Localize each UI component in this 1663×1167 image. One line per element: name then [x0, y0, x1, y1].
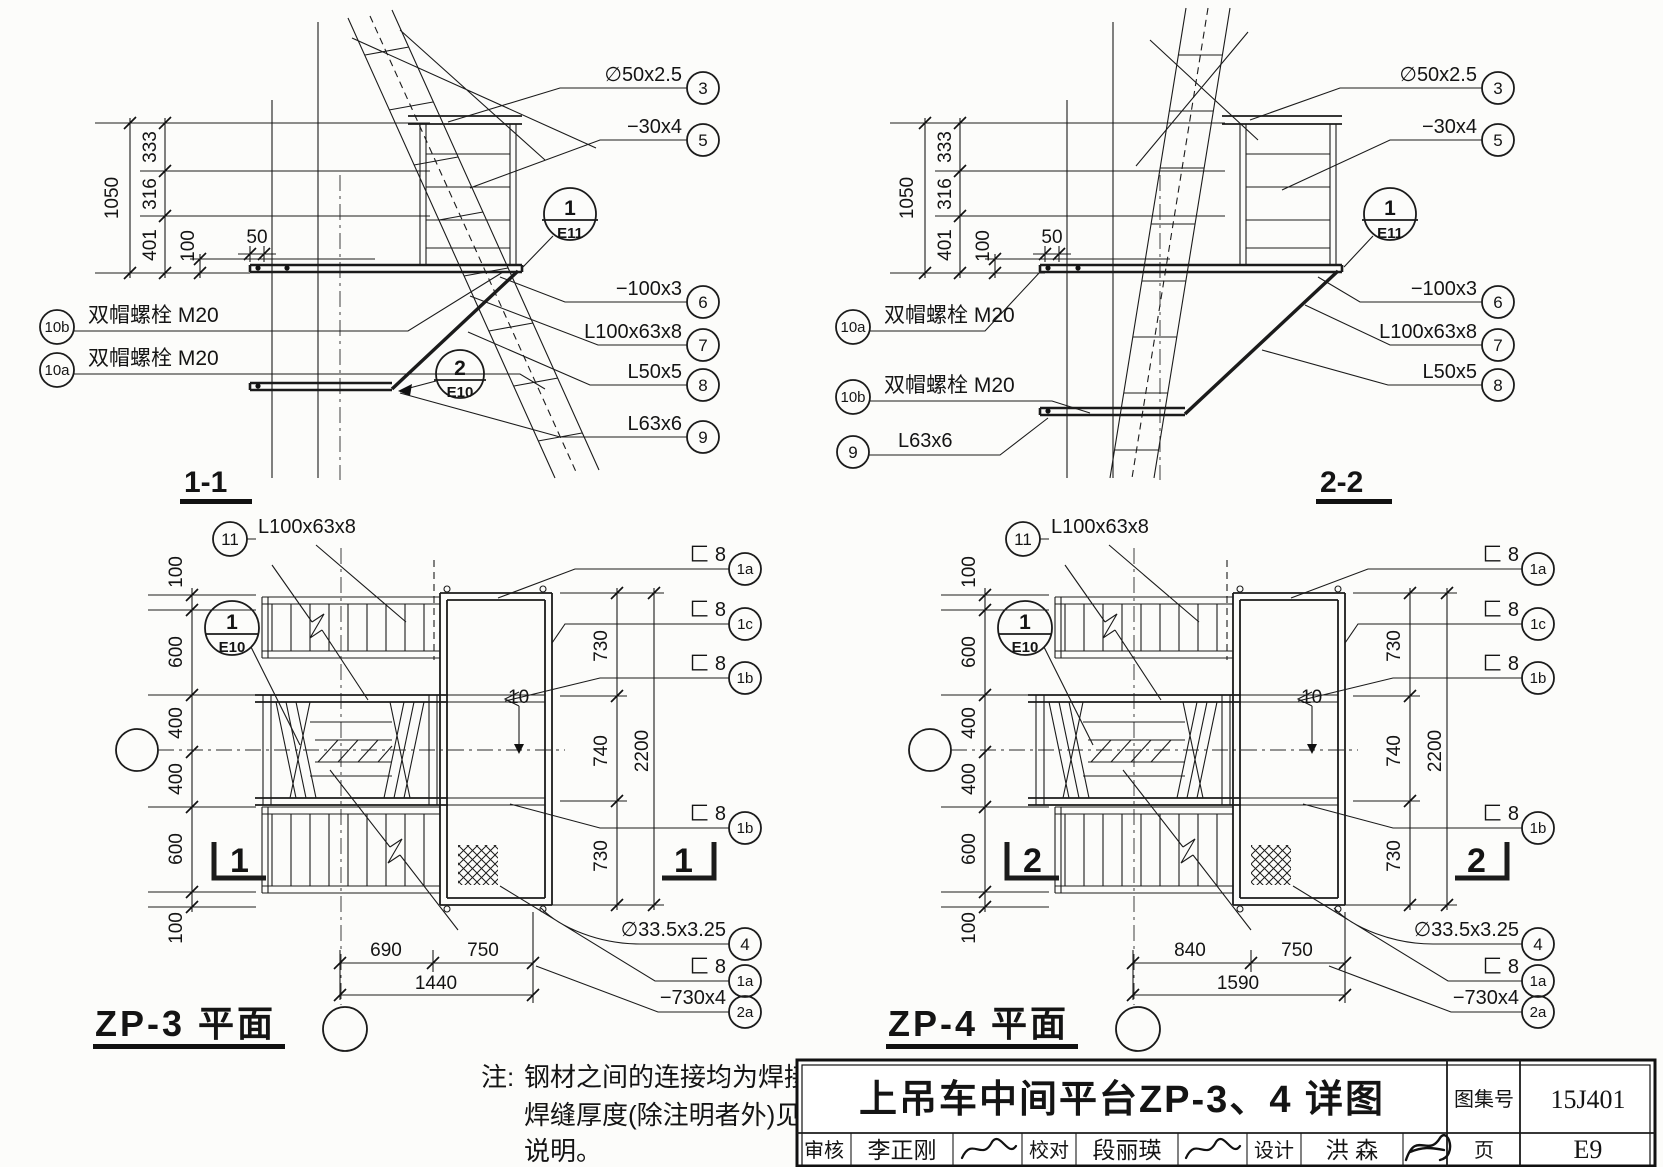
break-line	[1065, 565, 1161, 700]
title-underline	[886, 1044, 1078, 1049]
dim-600: 600	[959, 833, 980, 865]
callout-label-3: ∅50x2.5	[1400, 64, 1477, 86]
callouts-side-zp4: 匚 8 匚 8 匚 8 匚 8 ∅33.5x3.25 匚 8 −730x4 1a…	[1291, 544, 1554, 1028]
dim-100: 100	[959, 556, 980, 588]
title-underline	[1316, 499, 1392, 504]
dim-750: 750	[1281, 940, 1313, 961]
plan-zp4: 100 600 400 400 600 100 10	[886, 516, 1554, 1051]
callout-num: 2a	[1530, 1004, 1547, 1021]
callout-label-c8: 匚 8	[1482, 956, 1519, 978]
callout-label-6: −100x3	[1411, 278, 1477, 300]
callouts-side-zp3: 匚 8 匚 8 匚 8 匚 8 ∅33.5x3.25 匚 8 −730x4 1a…	[498, 544, 761, 1028]
section-title-1-1: 1-1	[184, 466, 227, 499]
callout-label-c8: 匚 8	[1482, 544, 1519, 566]
design-name: 洪 森	[1326, 1137, 1378, 1163]
note-block: 注: 钢材之间的连接均为焊接， 焊缝厚度(除注明者外)见 说明。	[481, 1062, 836, 1166]
dim-bottom-zp4: 840 750 1590	[1127, 912, 1351, 1003]
detail-sheet: E11	[557, 225, 583, 242]
bolt-label-10a: 双帽螺栓 M20	[88, 347, 219, 370]
dim-730: 730	[1384, 840, 1405, 872]
dim-730: 730	[591, 840, 612, 872]
dim-600: 600	[166, 833, 187, 865]
detail-num: 1	[1384, 197, 1396, 220]
callout-label-7: L100x63x8	[584, 321, 682, 343]
detail-bubble-1-e10: 1 E10	[205, 601, 300, 745]
bolt-label-10a: 双帽螺栓 M20	[884, 304, 1015, 327]
dim-740: 740	[1384, 735, 1405, 767]
note-prefix: 注:	[481, 1062, 514, 1092]
callout-label-8: L50x5	[628, 361, 683, 383]
callout-num: 1b	[1530, 670, 1547, 687]
dim-50: 50	[246, 227, 267, 248]
weld-mark: 10	[1298, 687, 1322, 754]
callout-num: 1b	[737, 670, 754, 687]
dim-600: 600	[166, 636, 187, 668]
corner-lug	[1237, 906, 1243, 912]
break-line	[330, 770, 458, 930]
grating-hatch	[1251, 845, 1291, 885]
bolt-dot	[255, 265, 260, 270]
platform-plan	[1233, 586, 1345, 912]
callout-label-c8: 匚 8	[1482, 653, 1519, 675]
page-number: E9	[1574, 1135, 1603, 1164]
grid-bubble	[909, 729, 951, 771]
callout-num: 9	[698, 428, 707, 447]
corner-lug	[540, 586, 546, 592]
dim-1050: 1050	[102, 177, 123, 219]
corner-lug	[444, 906, 450, 912]
callout-num: 1a	[737, 561, 754, 578]
proof-name: 段丽瑛	[1093, 1137, 1162, 1163]
detail-sheet: E10	[447, 384, 474, 401]
bolt-dot	[284, 265, 289, 270]
callout-num: 1a	[1530, 973, 1547, 990]
bolt-dot	[1075, 265, 1080, 270]
grid-bubble	[1116, 1007, 1160, 1051]
callout-num: 7	[1493, 336, 1502, 355]
corner-lug	[1335, 906, 1341, 912]
callout-num: 10a	[44, 362, 70, 379]
callout-label-2a: −730x4	[1453, 987, 1519, 1009]
dim-750: 750	[467, 940, 499, 961]
section-mark-1: 1	[230, 842, 249, 880]
callout-num: 1c	[737, 616, 753, 633]
check-label: 审核	[804, 1139, 844, 1162]
platform-railing-2-2	[1040, 116, 1342, 415]
callout-num: 1b	[1530, 820, 1547, 837]
break-line	[272, 565, 368, 700]
atlas-number: 15J401	[1550, 1085, 1625, 1114]
dim-401: 401	[140, 229, 161, 261]
dim-333: 333	[935, 131, 956, 163]
note-line-2: 焊缝厚度(除注明者外)见	[524, 1100, 801, 1130]
callout-num: 4	[1533, 935, 1542, 954]
callout-label-11: L100x63x8	[1051, 516, 1149, 538]
detail-sheet: E10	[1012, 639, 1039, 656]
detail-num: 1	[226, 611, 238, 634]
dim-401: 401	[935, 229, 956, 261]
callout-label-c8: 匚 8	[689, 544, 726, 566]
callout-label-8: L50x5	[1423, 361, 1478, 383]
callout-num: 10a	[840, 319, 866, 336]
grid-bubble	[116, 729, 158, 771]
page-label: 页	[1474, 1140, 1494, 1162]
corner-lug	[1335, 586, 1341, 592]
callout-num: 10b	[840, 389, 865, 406]
callout-label-11: L100x63x8	[258, 516, 356, 538]
ladder-flights-plan	[1055, 560, 1233, 893]
corner-lug	[1237, 586, 1243, 592]
bolt-label-10b: 双帽螺栓 M20	[88, 304, 219, 327]
section-mark-1: 1	[674, 842, 693, 880]
callout-label-9: L63x6	[898, 430, 953, 452]
detail-num: 2	[454, 357, 466, 380]
plan-zp3: 100 600 400 400 600 100 10	[93, 516, 761, 1051]
atlas-label: 图集号	[1454, 1088, 1514, 1111]
callout-num: 3	[1493, 79, 1502, 98]
title-underline	[93, 1044, 285, 1049]
dim-100: 100	[166, 556, 187, 588]
dim-100: 100	[973, 230, 994, 262]
dim-2200: 2200	[632, 730, 653, 772]
dim-100: 100	[178, 230, 199, 262]
bolt-label-10b: 双帽螺栓 M20	[884, 374, 1015, 397]
sheet-title: 上吊车中间平台ZP-3、4 详图	[859, 1079, 1385, 1121]
callout-num: 1a	[1530, 561, 1547, 578]
dim-840: 840	[1174, 940, 1206, 961]
callout-num: 4	[740, 935, 749, 954]
platform-plan	[440, 586, 552, 912]
dim-730: 730	[1384, 630, 1405, 662]
callout-num: 5	[698, 131, 707, 150]
dim-2200: 2200	[1425, 730, 1446, 772]
callout-num: 8	[698, 376, 707, 395]
dim-100: 100	[959, 912, 980, 944]
callout-num: 5	[1493, 131, 1502, 150]
title-underline	[180, 499, 252, 504]
callout-label-2a: −730x4	[660, 987, 726, 1009]
callout-label-5: −30x4	[1422, 116, 1477, 138]
callout-num: 1a	[737, 973, 754, 990]
callout-num: 9	[848, 443, 857, 462]
dim-1590: 1590	[1217, 973, 1259, 994]
callout-label-c8: 匚 8	[689, 803, 726, 825]
detail-sheet: E10	[219, 639, 246, 656]
callout-num: 1c	[1530, 616, 1546, 633]
dim-333: 333	[140, 131, 161, 163]
grid-bubble	[323, 1007, 367, 1051]
bolt-dot	[255, 383, 260, 388]
check-name: 李正刚	[868, 1137, 937, 1163]
callout-num: 6	[1493, 293, 1502, 312]
callout-num: 11	[221, 530, 239, 549]
detail-bubble-2-e10: 2 E10	[398, 350, 486, 401]
bolt-dot	[1045, 408, 1050, 413]
dim-316: 316	[140, 178, 161, 210]
title-block: 上吊车中间平台ZP-3、4 详图 图集号 15J401 审核 李正刚 校对 段丽…	[797, 1060, 1655, 1166]
callouts-left-2-2: 10a 10b 9 双帽螺栓 M20 双帽螺栓 M20 L63x6	[836, 272, 1090, 468]
section-mark-2: 2	[1467, 842, 1486, 880]
column-lines	[1067, 22, 1113, 478]
plan-title-zp3: ZP-3 平面	[95, 1003, 276, 1044]
proof-label: 校对	[1029, 1139, 1069, 1162]
drawing-sheet: 1050 333 316 401 100 50 1 E11 2	[0, 0, 1663, 1167]
dim-1440: 1440	[415, 973, 457, 994]
detail-num: 1	[1019, 611, 1031, 634]
dim-1050: 1050	[897, 177, 918, 219]
callout-label-c8: 匚 8	[689, 599, 726, 621]
detail-bubble-1-e11: 1 E11	[1344, 188, 1418, 267]
dim-block-2-2: 1050 333 316 401 100 50	[890, 117, 1225, 279]
callout-num: 3	[698, 79, 707, 98]
dim-400: 400	[959, 763, 980, 795]
callout-label-c8: 匚 8	[1482, 803, 1519, 825]
detail-bubble-1-e11: 1 E11	[523, 188, 598, 267]
callout-label-5: −30x4	[627, 116, 682, 138]
corner-lug	[444, 586, 450, 592]
design-label: 设计	[1254, 1139, 1294, 1162]
callout-num: 10b	[44, 319, 69, 336]
callout-num: 7	[698, 336, 707, 355]
callout-num: 8	[1493, 376, 1502, 395]
section-title-2-2: 2-2	[1320, 466, 1363, 499]
callout-label-4: ∅33.5x3.25	[621, 919, 726, 941]
dim-400: 400	[166, 763, 187, 795]
callout-label-4: ∅33.5x3.25	[1414, 919, 1519, 941]
dim-316: 316	[935, 178, 956, 210]
section-2-2: 1050 333 316 401 100 50 1 E11 ∅50x2.5 −3…	[836, 8, 1514, 504]
weld-mark: 10	[505, 687, 529, 754]
dim-740: 740	[591, 735, 612, 767]
callout-label-6: −100x3	[616, 278, 682, 300]
dim-600: 600	[959, 636, 980, 668]
note-line-3: 说明。	[524, 1136, 602, 1166]
dim-block-1-1: 1050 333 316 401 100 50	[95, 117, 430, 279]
detail-num: 1	[564, 197, 576, 220]
note-line-1: 钢材之间的连接均为焊接，	[524, 1062, 836, 1092]
break-line	[1123, 770, 1251, 930]
callout-num: 11	[1014, 530, 1032, 549]
callout-label-9: L63x6	[628, 413, 683, 435]
callout-label-c8: 匚 8	[1482, 599, 1519, 621]
dim-bottom-zp3: 690 750 1440	[334, 912, 539, 1003]
callout-num: 1b	[737, 820, 754, 837]
dim-50: 50	[1041, 227, 1062, 248]
ladder-1-1	[348, 10, 599, 478]
platform-railing-1-1	[250, 116, 522, 390]
bolt-dot	[1045, 265, 1050, 270]
callout-label-7: L100x63x8	[1379, 321, 1477, 343]
callout-label-3: ∅50x2.5	[605, 64, 682, 86]
callout-num: 2a	[737, 1004, 754, 1021]
callout-label-c8: 匚 8	[689, 653, 726, 675]
ladder-flights-plan	[262, 560, 440, 893]
callout-label-c8: 匚 8	[689, 956, 726, 978]
callout-num: 6	[698, 293, 707, 312]
dim-730: 730	[591, 630, 612, 662]
dim-400: 400	[959, 707, 980, 739]
dim-100: 100	[166, 912, 187, 944]
section-1-1: 1050 333 316 401 100 50 1 E11 2	[40, 10, 719, 504]
callouts-left-1-1: 10b 10a 双帽螺栓 M20 双帽螺栓 M20	[40, 272, 545, 389]
dim-400: 400	[166, 707, 187, 739]
detail-sheet: E11	[1377, 225, 1403, 242]
column-lines	[272, 22, 318, 478]
section-mark-2: 2	[1023, 842, 1042, 880]
grating-hatch	[458, 845, 498, 885]
plan-title-zp4: ZP-4 平面	[888, 1003, 1069, 1044]
dim-690: 690	[370, 940, 402, 961]
